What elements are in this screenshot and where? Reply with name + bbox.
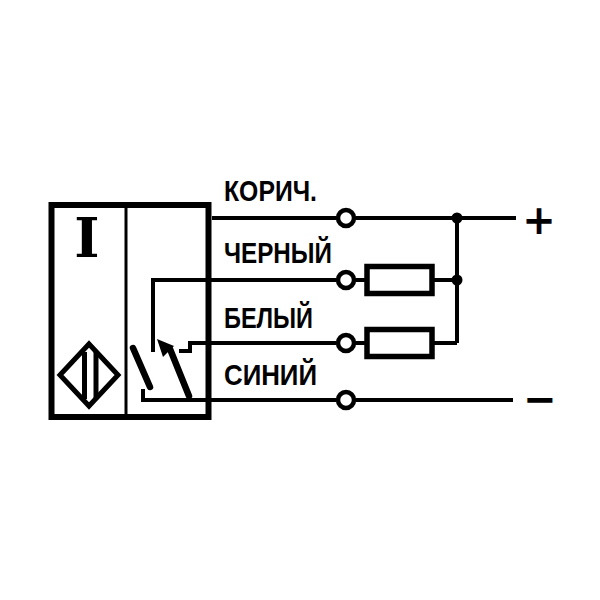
terminal-circle-blue [338,392,354,408]
wire-label-blue: СИНИЙ [224,358,317,391]
polarity-minus-label: − [523,376,557,422]
terminal-circle-white [338,335,354,351]
junction-dot-middle [452,275,463,286]
terminal-circle-black [338,272,354,288]
load-resistor-black-wire [367,267,432,294]
wiring-diagram-canvas: I [0,0,600,600]
junction-dot-top [452,213,463,224]
wire-label-white: БЕЛЫЙ [224,301,313,334]
load-resistor-white-wire [367,330,432,357]
sensor-connection-diagram: I [0,0,600,600]
sensor-logic-symbol: I [74,206,99,270]
polarity-plus-label: + [522,197,556,243]
terminal-circle-brown [338,210,354,226]
wire-label-black: ЧЕРНЫЙ [224,236,332,269]
wire-label-brown: КОРИЧ. [224,174,317,207]
